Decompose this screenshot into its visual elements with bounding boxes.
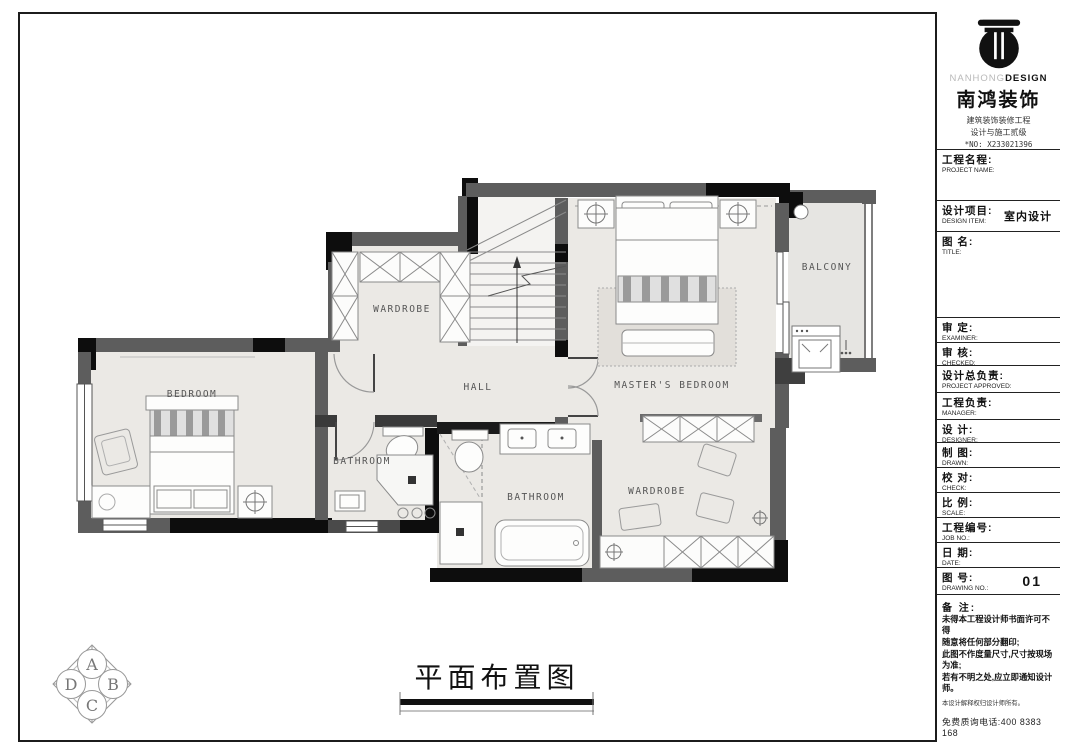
field-drawn: 制 图: DRAWN: [937,443,1060,468]
drawing-sheet: BEDROOM WARDROBE HALL MASTER'S BEDROOM B… [0,0,1080,756]
field-manager-en: MANAGER: [942,410,1055,417]
field-date-zh: 日 期: [942,545,1055,560]
brand-en-light: NANHONG [950,73,1006,84]
field-project-name: 工程名程: PROJECT NAME: [937,150,1060,200]
cert-lines: 建筑装饰装修工程 设计与施工贰级 [937,115,1060,138]
field-check-en: CHECK: [942,485,1055,492]
field-job-no-zh: 工程编号: [942,520,1055,535]
compass-logo: A B C D [53,645,131,723]
field-title-en: TITLE: [942,249,1055,256]
field-drawing-no: 图 号: DRAWING NO.: 01 [937,568,1060,595]
field-design-item-value: 室内设计 [1004,208,1052,224]
field-check-zh: 校 对: [942,470,1055,485]
label-bedroom: BEDROOM [167,389,218,400]
field-scale-en: SCALE: [942,510,1055,517]
field-designer-zh: 设 计: [942,422,1055,437]
field-examiner-zh: 审 定: [942,320,1055,335]
compass-letter-d: D [65,675,78,694]
label-wardrobe-top: WARDROBE [373,304,431,315]
brand-en-bold: DESIGN [1005,73,1047,84]
field-date-en: DATE: [942,560,1055,567]
label-hall: HALL [464,382,493,393]
notes-line-6: 师。 [942,683,1055,695]
field-project-name-zh: 工程名程: [942,152,1055,167]
field-title: 图 名: TITLE: [937,232,1060,318]
label-balcony: BALCONY [802,262,853,273]
field-designer: 设 计: DESIGNER: [937,420,1060,443]
field-project-approved: 设计总负责: PROJECT APPROVED: [937,366,1060,393]
field-check: 校 对: CHECK: [937,468,1060,493]
title-block: NANHONGDESIGN 南鸿装饰 建筑装饰装修工程 设计与施工贰级 *NO:… [935,12,1060,742]
cert-no: *NO: X233021396 [937,140,1060,149]
label-bathroom-master: BATHROOM [507,492,565,503]
field-examiner: 审 定: EXAMINER: [937,318,1060,343]
compass-letter-a: A [85,655,98,674]
label-bathroom-small: BATHROOM [333,456,391,467]
field-title-zh: 图 名: [942,234,1055,249]
field-checked-zh: 审 核: [942,345,1055,360]
field-drawn-zh: 制 图: [942,445,1055,460]
label-master-bedroom: MASTER'S BEDROOM [614,380,730,391]
field-project-approved-zh: 设计总负责: [942,368,1055,383]
notes-section: 备 注: 未得本工程设计师书面许可不得 随意将任何部分翻印; 此图不作度量尺寸,… [937,595,1060,742]
field-project-approved-en: PROJECT APPROVED: [942,383,1055,390]
field-drawing-no-value: 01 [1022,573,1042,589]
field-manager-zh: 工程负责: [942,395,1055,410]
field-job-no: 工程编号: JOB NO.: [937,518,1060,543]
drawing-title: 平面布置图 [414,662,579,693]
field-examiner-en: EXAMINER: [942,335,1055,342]
drawing-title-group: 平面布置图 [400,662,594,715]
field-job-no-en: JOB NO.: [942,535,1055,542]
brand-en: NANHONGDESIGN [937,73,1060,84]
cert-line2: 设计与施工贰级 [937,127,1060,139]
cert-line1: 建筑装饰装修工程 [937,115,1060,127]
compass-letter-c: C [86,696,98,715]
field-manager: 工程负责: MANAGER: [937,393,1060,420]
notes-title: 备 注: [942,599,1055,614]
field-project-name-en: PROJECT NAME: [942,167,1055,174]
field-date: 日 期: DATE: [937,543,1060,568]
company-logo: NANHONGDESIGN 南鸿装饰 建筑装饰装修工程 设计与施工贰级 *NO:… [937,12,1060,150]
column-logo-icon [972,16,1026,70]
notes-line-5: 若有不明之处,应立即通知设计 [942,672,1055,684]
field-drawn-en: DRAWN: [942,460,1055,467]
notes-phone: 免费质询电话:400 8383 168 [942,715,1055,738]
field-design-item: 设计项目: DESIGN ITEM: 室内设计 [937,201,1060,232]
label-wardrobe-walkin: WARDROBE [628,486,686,497]
field-scale-zh: 比 例: [942,495,1055,510]
notes-disclaimer: 本设计解释权归设计师所有。 [942,698,1055,707]
notes-line-4: 为准; [942,660,1055,672]
notes-line-2: 随意将任何部分翻印; [942,637,1055,649]
floor-plan: BEDROOM WARDROBE HALL MASTER'S BEDROOM B… [0,0,935,756]
notes-line-1: 未得本工程设计师书面许可不得 [942,614,1055,637]
field-checked: 审 核: CHECKED: [937,343,1060,366]
compass-letter-b: B [107,675,119,694]
notes-line-3: 此图不作度量尺寸,尺寸按现场 [942,649,1055,661]
field-scale: 比 例: SCALE: [937,493,1060,518]
brand-zh: 南鸿装饰 [937,85,1060,112]
